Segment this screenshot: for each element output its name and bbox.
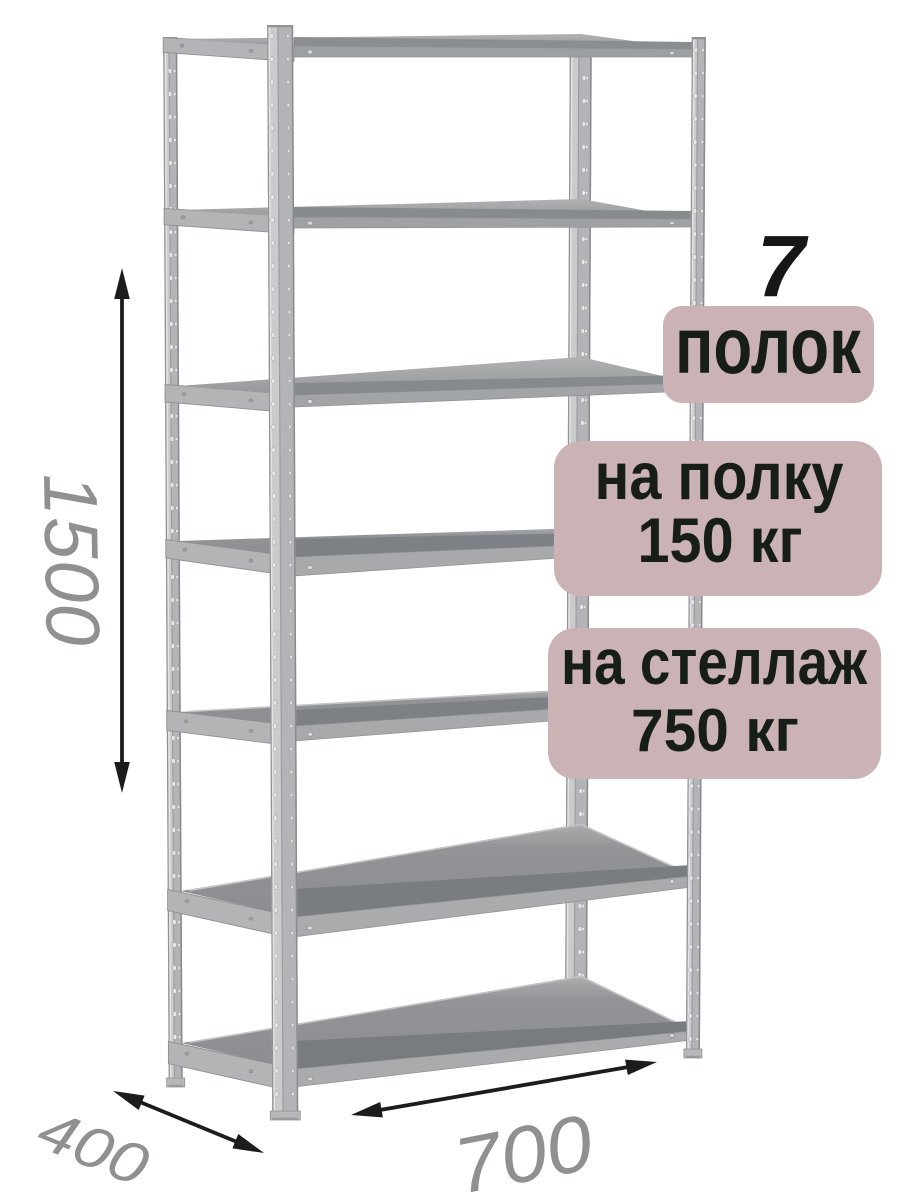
- svg-text:750 кг: 750 кг: [631, 697, 799, 764]
- svg-text:на стеллаж: на стеллаж: [561, 626, 868, 698]
- svg-text:150 кг: 150 кг: [638, 506, 803, 576]
- svg-text:полок: полок: [675, 301, 862, 390]
- svg-text:на полку: на полку: [595, 439, 844, 514]
- svg-text:1500: 1500: [27, 473, 115, 646]
